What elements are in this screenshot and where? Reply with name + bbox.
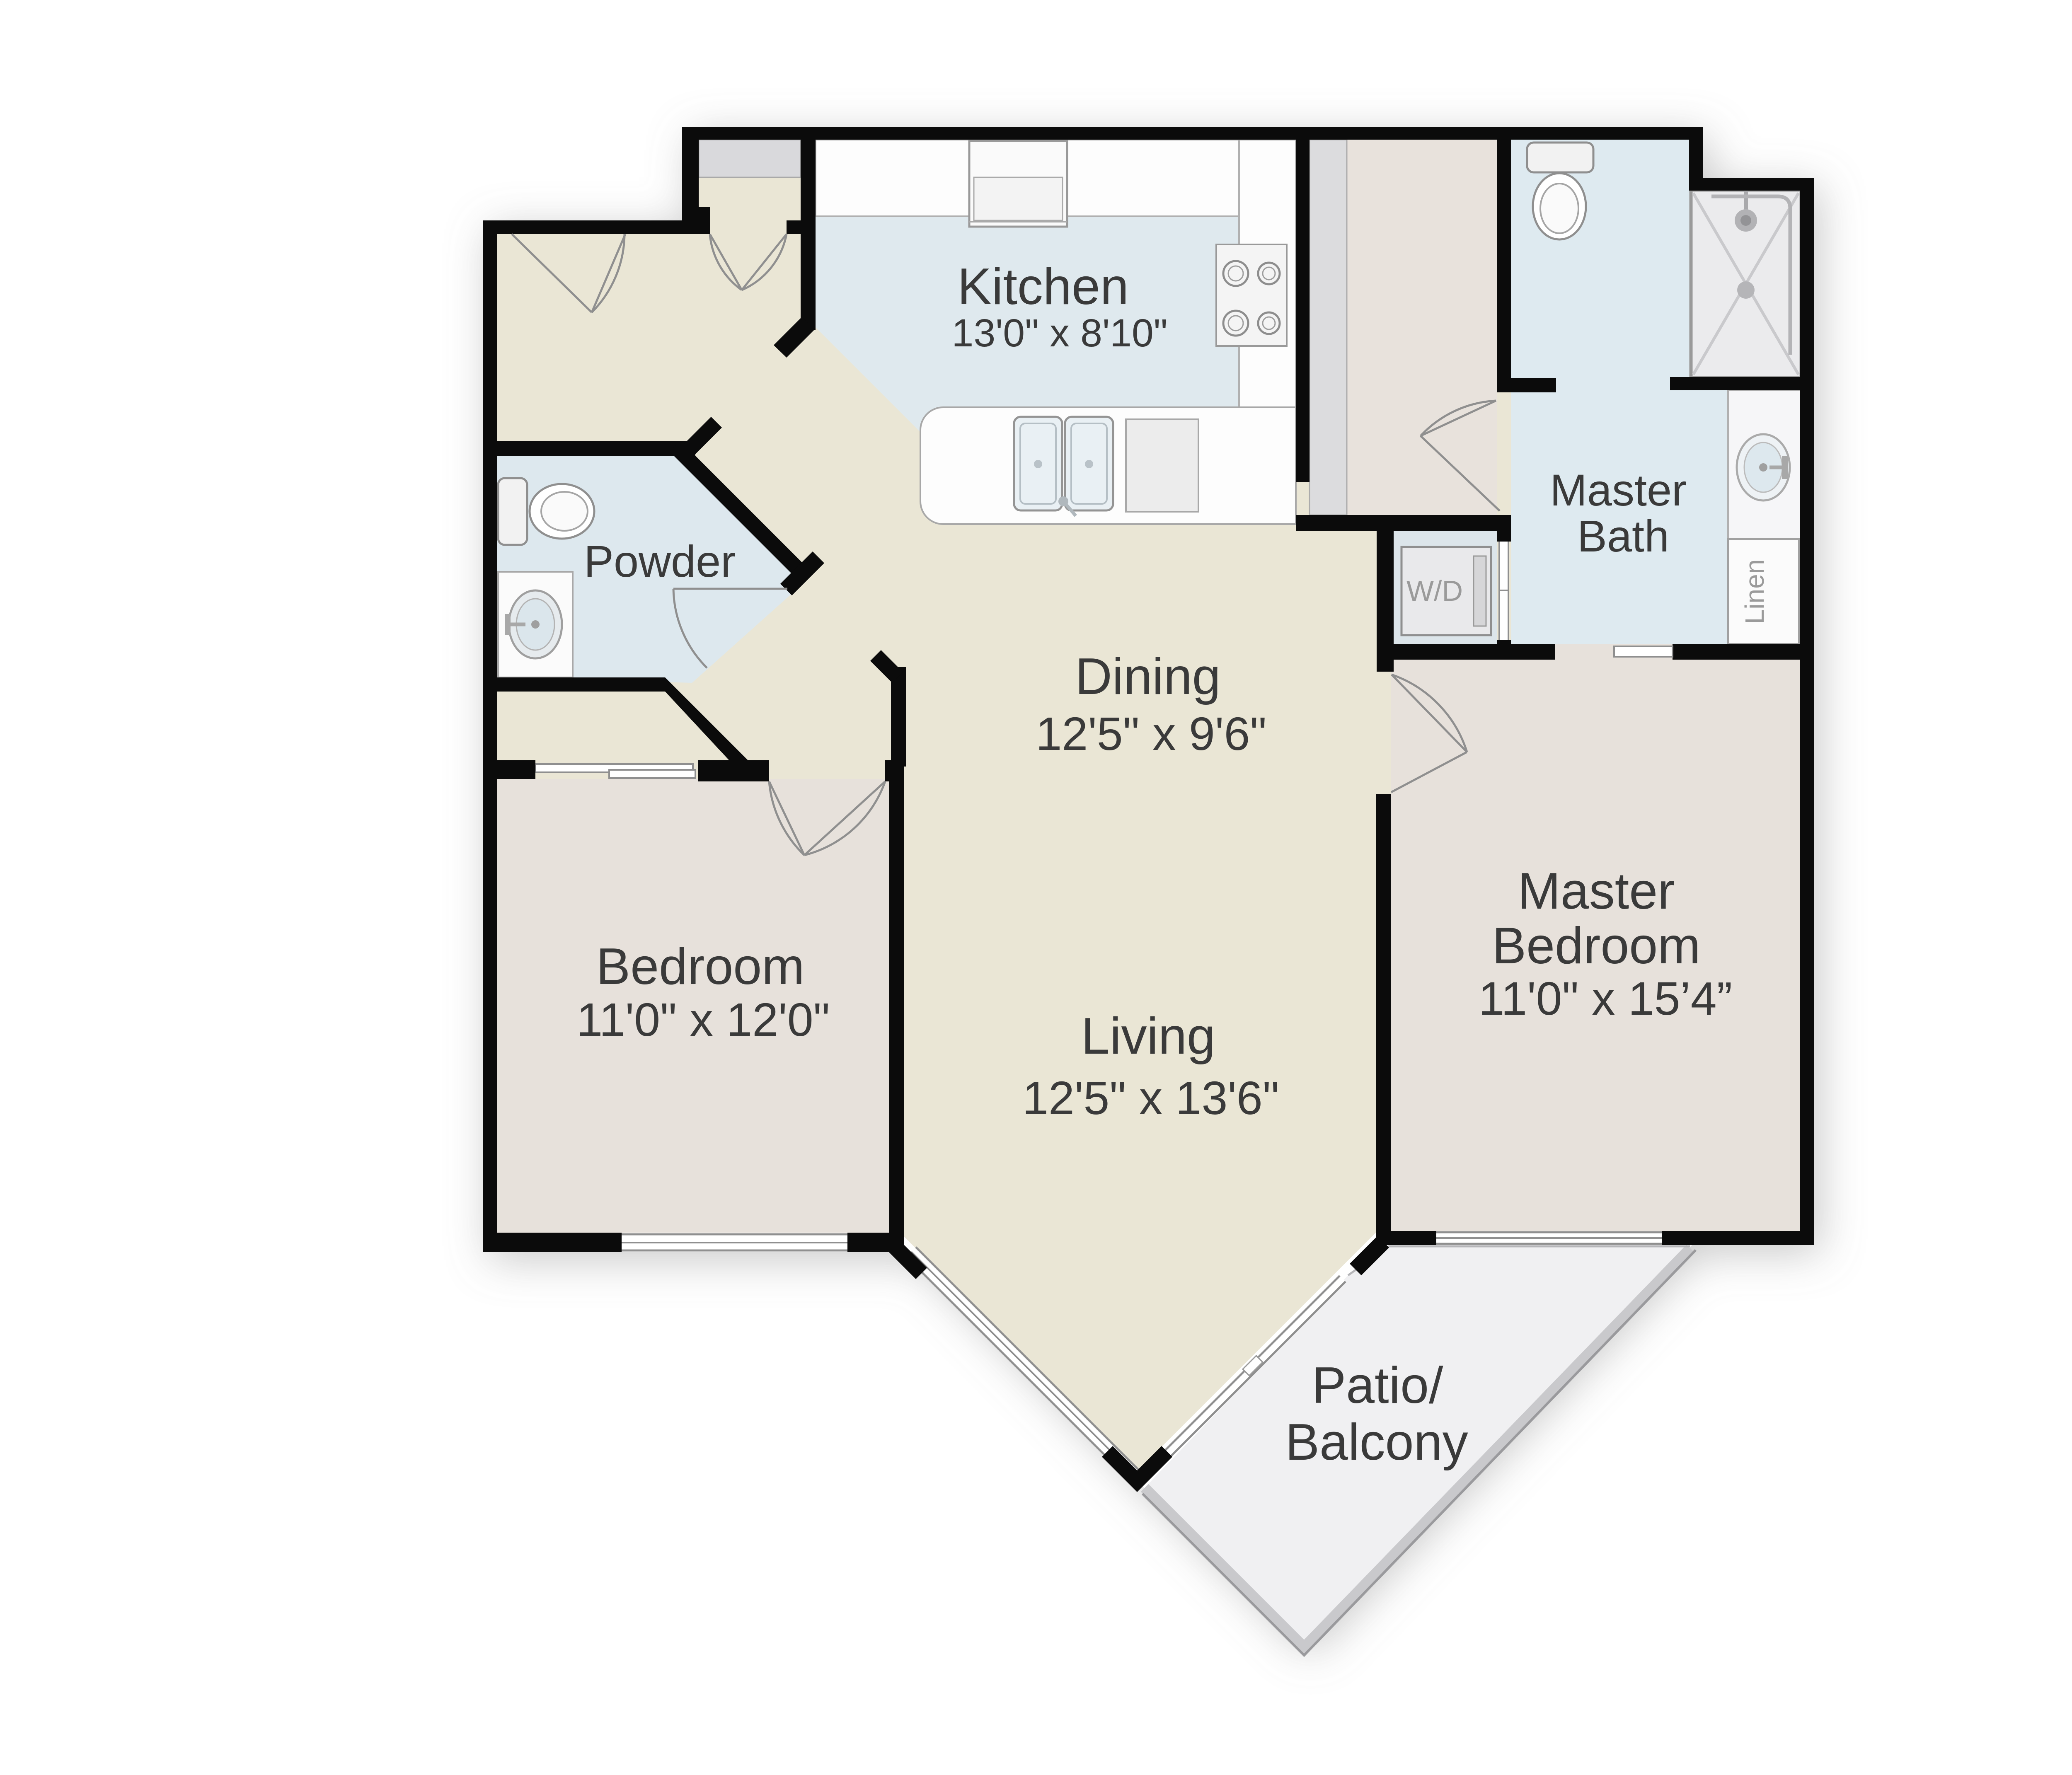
svg-text:12'5" x 9'6": 12'5" x 9'6" [1036,708,1267,760]
svg-text:Linen: Linen [1740,559,1769,624]
svg-text:Kitchen: Kitchen [957,258,1129,315]
svg-text:Bath: Bath [1577,511,1669,561]
svg-text:W/D: W/D [1406,575,1463,607]
svg-text:11'0" x 12'0": 11'0" x 12'0" [576,994,830,1046]
svg-text:Master: Master [1550,465,1687,515]
svg-text:Patio/: Patio/ [1312,1357,1443,1414]
svg-text:Master: Master [1518,863,1675,920]
svg-text:Bedroom: Bedroom [1492,917,1700,975]
svg-text:11'0" x 15’4”: 11'0" x 15’4” [1479,972,1732,1025]
svg-text:13'0" x 8'10": 13'0" x 8'10" [951,311,1167,355]
svg-text:Powder: Powder [584,536,736,586]
svg-text:12'5" x 13'6": 12'5" x 13'6" [1022,1072,1279,1124]
svg-text:Bedroom: Bedroom [596,938,804,995]
svg-text:Balcony: Balcony [1285,1414,1468,1471]
svg-text:Living: Living [1081,1008,1215,1065]
svg-text:Dining: Dining [1075,648,1221,705]
